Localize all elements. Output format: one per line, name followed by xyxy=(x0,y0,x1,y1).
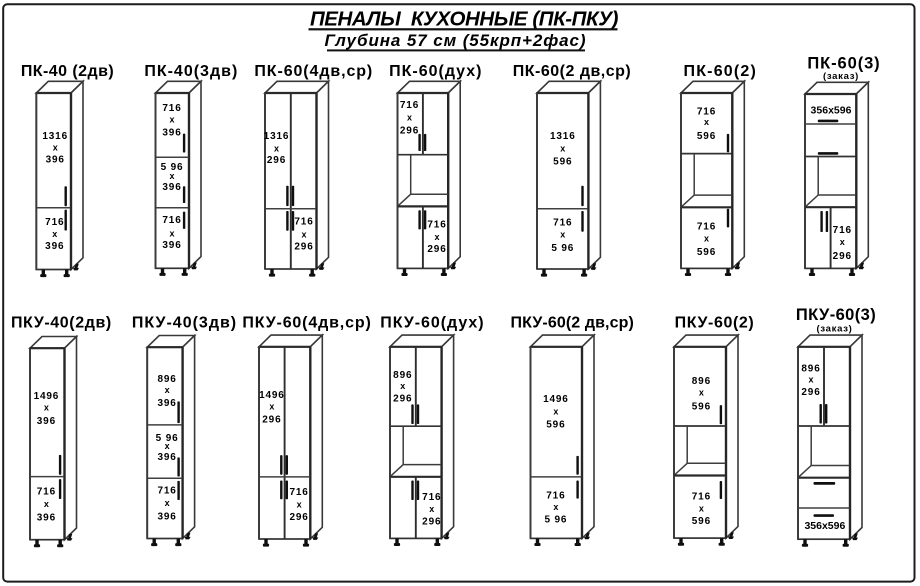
svg-text:1316: 1316 xyxy=(264,131,290,142)
svg-text:ПК-60(дух): ПК-60(дух) xyxy=(389,63,482,80)
svg-text:716: 716 xyxy=(553,217,572,228)
svg-text:296: 296 xyxy=(393,393,412,404)
svg-text:596: 596 xyxy=(692,516,711,527)
svg-text:296: 296 xyxy=(833,251,852,262)
svg-text:ПК-60(2): ПК-60(2) xyxy=(684,63,758,80)
svg-text:х: х xyxy=(429,504,434,514)
svg-text:ПК-40(3дв): ПК-40(3дв) xyxy=(144,63,238,80)
svg-text:ПКУ-60(дух): ПКУ-60(дух) xyxy=(380,315,484,332)
svg-text:296: 296 xyxy=(262,414,281,425)
svg-text:1496: 1496 xyxy=(259,390,285,401)
svg-text:ПК-60(2 дв,ср): ПК-60(2 дв,ср) xyxy=(513,63,632,80)
svg-text:716: 716 xyxy=(697,221,716,232)
svg-text:х: х xyxy=(52,229,57,239)
svg-text:х: х xyxy=(169,171,174,181)
svg-text:1496: 1496 xyxy=(543,394,569,405)
svg-text:716: 716 xyxy=(697,107,716,118)
svg-text:х: х xyxy=(169,228,174,238)
svg-text:716: 716 xyxy=(45,217,64,228)
svg-text:х: х xyxy=(553,406,558,416)
svg-text:х: х xyxy=(301,230,306,240)
svg-text:ПКУ-40(2дв): ПКУ-40(2дв) xyxy=(11,315,112,332)
svg-text:356x596: 356x596 xyxy=(804,520,845,532)
svg-text:896: 896 xyxy=(801,364,820,375)
svg-text:х: х xyxy=(699,504,704,514)
svg-text:х: х xyxy=(53,142,58,152)
svg-text:296: 296 xyxy=(422,517,441,528)
svg-text:х: х xyxy=(44,499,49,509)
svg-text:596: 596 xyxy=(697,131,716,142)
svg-text:ПКУ-60(2 дв,ср): ПКУ-60(2 дв,ср) xyxy=(511,315,634,332)
svg-text:296: 296 xyxy=(267,155,286,166)
svg-text:396: 396 xyxy=(162,240,181,251)
svg-text:х: х xyxy=(165,441,170,451)
svg-text:1496: 1496 xyxy=(34,391,60,402)
svg-text:296: 296 xyxy=(400,126,419,137)
svg-text:х: х xyxy=(560,143,565,153)
svg-text:1316: 1316 xyxy=(42,131,68,142)
svg-text:296: 296 xyxy=(427,244,446,255)
svg-text:716: 716 xyxy=(37,487,56,498)
svg-text:396: 396 xyxy=(46,154,65,165)
svg-text:716: 716 xyxy=(427,220,446,231)
svg-text:ПК-40 (2дв): ПК-40 (2дв) xyxy=(21,63,114,80)
svg-text:х: х xyxy=(169,115,174,125)
svg-text:ПКУ-60(3): ПКУ-60(3) xyxy=(796,306,876,324)
svg-text:716: 716 xyxy=(162,103,181,114)
svg-text:х: х xyxy=(297,499,302,509)
svg-text:1316: 1316 xyxy=(550,131,576,142)
svg-text:716: 716 xyxy=(833,225,852,236)
svg-text:716: 716 xyxy=(294,216,313,227)
svg-text:396: 396 xyxy=(162,182,181,193)
svg-text:ПКУ-60(4дв,ср): ПКУ-60(4дв,ср) xyxy=(242,315,371,332)
svg-text:396: 396 xyxy=(37,416,56,427)
svg-text:х: х xyxy=(274,143,279,153)
svg-text:716: 716 xyxy=(546,491,565,502)
svg-text:356x596: 356x596 xyxy=(811,105,852,117)
svg-text:х: х xyxy=(704,234,709,244)
svg-text:296: 296 xyxy=(289,512,308,523)
svg-text:5 96: 5 96 xyxy=(544,515,567,526)
svg-text:396: 396 xyxy=(157,398,176,409)
svg-text:х: х xyxy=(165,385,170,395)
svg-text:х: х xyxy=(434,232,439,242)
svg-text:716: 716 xyxy=(162,215,181,226)
svg-text:ПЕНАЛЫ КУХОННЫЕ (ПК-ПКУ): ПЕНАЛЫ КУХОННЫЕ (ПК-ПКУ) xyxy=(310,8,619,31)
svg-text:396: 396 xyxy=(157,511,176,522)
svg-text:296: 296 xyxy=(294,242,313,253)
svg-text:716: 716 xyxy=(422,492,441,503)
svg-text:716: 716 xyxy=(400,100,419,111)
svg-text:х: х xyxy=(704,117,709,127)
svg-text:896: 896 xyxy=(393,370,412,381)
svg-text:х: х xyxy=(44,403,49,413)
svg-text:596: 596 xyxy=(697,247,716,258)
svg-text:х: х xyxy=(165,498,170,508)
svg-text:396: 396 xyxy=(45,241,64,252)
svg-text:896: 896 xyxy=(692,376,711,387)
svg-text:х: х xyxy=(840,237,845,247)
svg-text:х: х xyxy=(269,402,274,412)
svg-text:5 96: 5 96 xyxy=(551,243,574,254)
svg-text:596: 596 xyxy=(553,156,572,167)
svg-text:х: х xyxy=(407,112,412,122)
svg-text:716: 716 xyxy=(157,485,176,496)
svg-text:х: х xyxy=(560,230,565,240)
svg-text:396: 396 xyxy=(157,452,176,463)
svg-text:ПКУ-40(3дв): ПКУ-40(3дв) xyxy=(132,315,237,332)
svg-text:396: 396 xyxy=(37,513,56,524)
svg-text:716: 716 xyxy=(692,492,711,503)
svg-text:Глубина 57 см (55крп+2фас): Глубина 57 см (55крп+2фас) xyxy=(325,31,587,50)
svg-text:х: х xyxy=(699,388,704,398)
svg-text:х: х xyxy=(808,374,813,384)
svg-text:(заказ): (заказ) xyxy=(823,71,859,82)
svg-text:296: 296 xyxy=(801,387,820,398)
svg-text:х: х xyxy=(553,502,558,512)
svg-text:596: 596 xyxy=(692,401,711,412)
svg-text:596: 596 xyxy=(546,420,565,431)
svg-text:ПК-60(3): ПК-60(3) xyxy=(807,54,880,72)
svg-text:716: 716 xyxy=(289,487,308,498)
svg-text:ПКУ-60(2): ПКУ-60(2) xyxy=(675,315,755,332)
svg-text:х: х xyxy=(400,381,405,391)
svg-text:ПК-60(4дв,ср): ПК-60(4дв,ср) xyxy=(254,63,373,80)
svg-text:396: 396 xyxy=(162,128,181,139)
svg-text:896: 896 xyxy=(157,374,176,385)
svg-text:(заказ): (заказ) xyxy=(817,323,853,334)
